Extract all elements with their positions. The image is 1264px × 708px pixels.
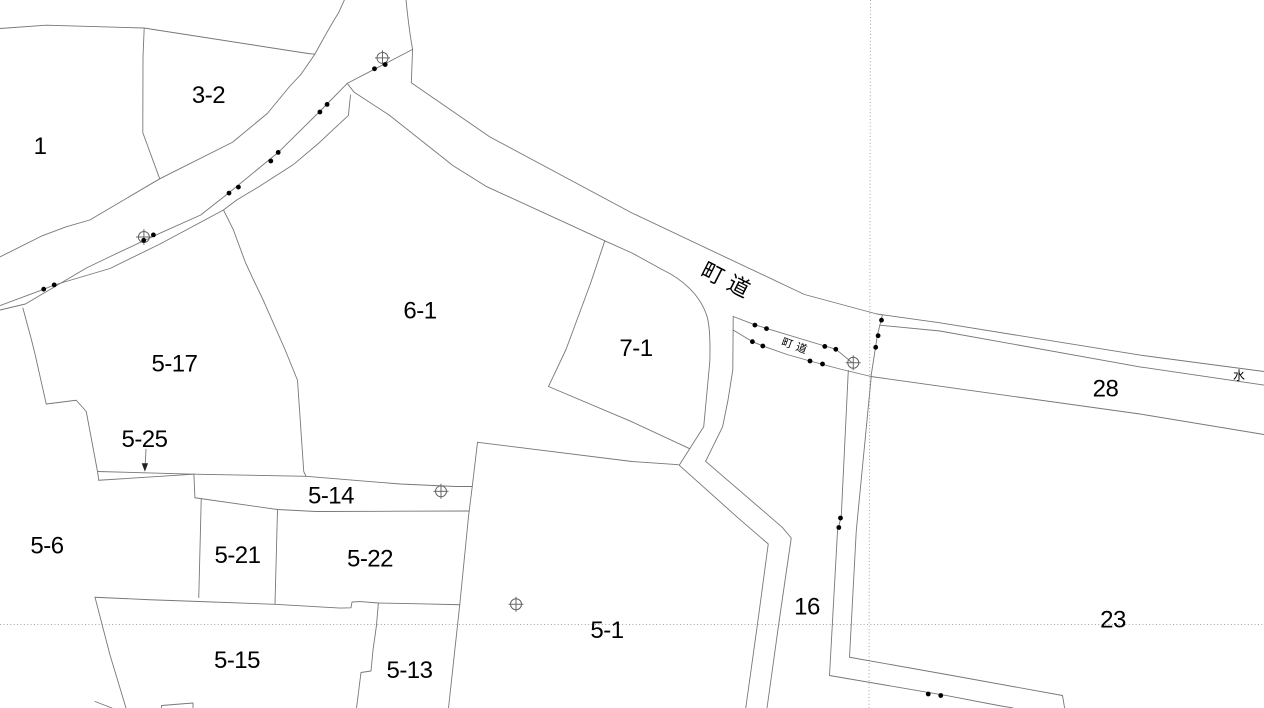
svg-text:6-1: 6-1 [403,298,436,325]
svg-text:5-6: 5-6 [30,533,63,560]
svg-text:28: 28 [1093,376,1119,403]
svg-text:5-13: 5-13 [386,657,432,684]
svg-text:3-2: 3-2 [192,82,225,109]
svg-text:16: 16 [794,594,820,621]
svg-text:23: 23 [1100,607,1126,634]
svg-text:水: 水 [1233,369,1245,383]
svg-text:5-14: 5-14 [308,483,354,510]
svg-text:5-22: 5-22 [347,546,393,573]
svg-text:5-1: 5-1 [590,617,623,644]
svg-text:5-25: 5-25 [121,426,167,453]
svg-text:5-15: 5-15 [214,647,260,674]
svg-text:1: 1 [34,133,47,160]
svg-text:5-21: 5-21 [214,542,260,569]
svg-text:7-1: 7-1 [619,335,652,362]
svg-text:5-17: 5-17 [151,351,197,378]
